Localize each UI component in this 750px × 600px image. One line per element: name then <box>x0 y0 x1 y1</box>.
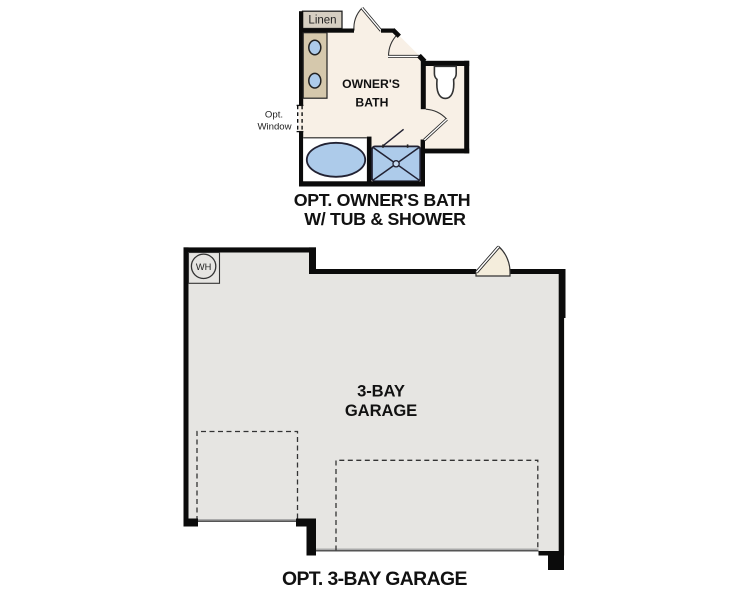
svg-text:W/ TUB & SHOWER: W/ TUB & SHOWER <box>304 209 466 229</box>
svg-text:Opt.: Opt. <box>265 110 283 121</box>
svg-text:Linen: Linen <box>308 15 336 27</box>
svg-text:GARAGE: GARAGE <box>345 401 417 420</box>
svg-text:3-BAY: 3-BAY <box>357 382 405 401</box>
svg-text:OWNER'S: OWNER'S <box>342 77 400 91</box>
svg-text:WH: WH <box>196 262 212 272</box>
svg-text:OPT. 3-BAY GARAGE: OPT. 3-BAY GARAGE <box>282 568 467 590</box>
svg-text:OPT. OWNER'S BATH: OPT. OWNER'S BATH <box>294 190 471 210</box>
svg-text:Window: Window <box>257 121 291 132</box>
svg-text:BATH: BATH <box>355 96 388 110</box>
